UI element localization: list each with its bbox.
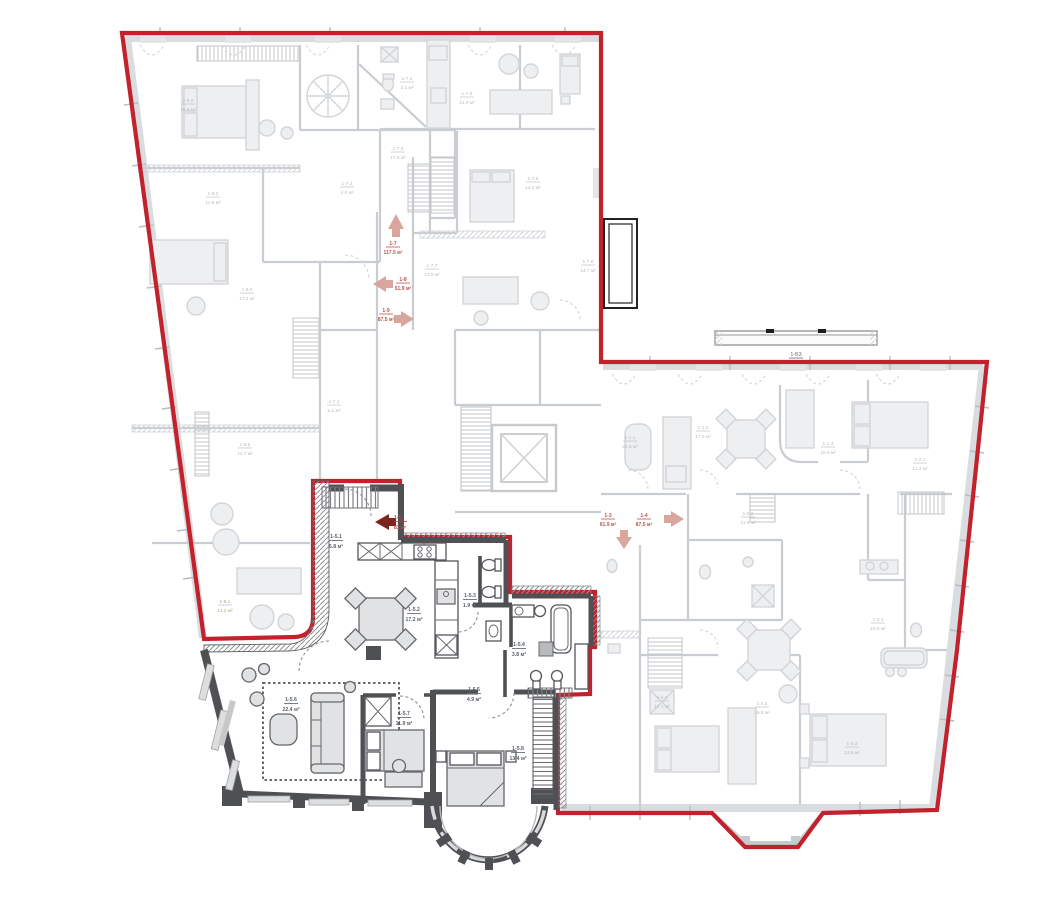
corridor-staircase <box>322 487 378 508</box>
svg-text:5.8 м²: 5.8 м² <box>329 544 343 550</box>
svg-text:1-3: 1-3 <box>604 513 611 519</box>
bedroom-1-furniture <box>365 697 424 787</box>
entrance-arrow-down-right-wing: 1-361.9 м² <box>600 513 632 549</box>
svg-text:17.4 м²: 17.4 м² <box>239 296 255 302</box>
svg-text:1-5.7: 1-5.7 <box>398 711 410 717</box>
vanity <box>486 621 501 641</box>
party-wall-hatch <box>533 697 553 797</box>
svg-text:21.9 м²: 21.9 м² <box>459 100 475 106</box>
svg-text:21.9 м²: 21.9 м² <box>740 520 756 526</box>
svg-text:1-Б3: 1-Б3 <box>790 352 801 358</box>
svg-text:117.5 м²: 117.5 м² <box>384 250 403 256</box>
svg-text:11.9 м²: 11.9 м² <box>396 721 413 727</box>
svg-text:4.9 м²: 4.9 м² <box>467 697 481 703</box>
stove <box>414 545 436 559</box>
armchair <box>270 714 297 745</box>
svg-text:13.9 м²: 13.9 м² <box>424 272 440 278</box>
spiral-staircase <box>307 64 426 127</box>
svg-text:1-5.4: 1-5.4 <box>513 642 525 648</box>
balcony-label: 1-Б3 <box>789 352 803 358</box>
svg-text:1-5.3: 1-5.3 <box>464 593 476 599</box>
svg-text:11.4 м²: 11.4 м² <box>912 466 928 472</box>
svg-text:1-3.1: 1-3.1 <box>873 617 884 623</box>
svg-text:87.5 м²: 87.5 м² <box>636 522 653 528</box>
entrance-arrow-up: 1-7117.5 м² <box>384 214 405 256</box>
svg-text:16.5 м²: 16.5 м² <box>870 626 886 632</box>
plant <box>242 668 256 682</box>
chair <box>393 760 406 773</box>
svg-text:3.1 м²: 3.1 м² <box>401 85 414 91</box>
svg-text:13.6 м²: 13.6 м² <box>844 750 860 756</box>
svg-text:22.4 м²: 22.4 м² <box>282 707 299 713</box>
svg-text:1-7.6: 1-7.6 <box>528 176 539 182</box>
side-table <box>250 692 264 706</box>
shower-tray <box>539 642 553 656</box>
svg-text:1-1.3: 1-1.3 <box>823 441 834 447</box>
svg-text:1-9: 1-9 <box>382 308 389 314</box>
svg-text:1-6.1: 1-6.1 <box>220 599 231 605</box>
svg-text:14.2 м²: 14.2 м² <box>525 185 541 191</box>
svg-text:1-4: 1-4 <box>640 513 647 519</box>
svg-text:15.4 м²: 15.4 м² <box>820 450 836 456</box>
svg-text:1-5.5: 1-5.5 <box>468 687 480 693</box>
sink <box>552 671 563 682</box>
svg-text:17.6 м²: 17.6 м² <box>390 155 406 161</box>
svg-text:1-7.5: 1-7.5 <box>462 91 473 97</box>
svg-text:1-7: 1-7 <box>389 241 396 247</box>
svg-text:13.4 м²: 13.4 м² <box>509 756 526 762</box>
svg-text:1-4.1: 1-4.1 <box>657 695 668 701</box>
svg-text:1-7.8: 1-7.8 <box>583 259 594 265</box>
faded-room-labels: 1-6.216.9 м² 1-6.311.8 м² 1-6.417.4 м² 1… <box>180 76 928 756</box>
svg-text:11.7 м²: 11.7 м² <box>237 451 253 457</box>
elevator-core <box>461 407 556 491</box>
svg-text:1-7.3: 1-7.3 <box>393 146 404 152</box>
entrance-arrow-right-right-wing: 1-487.5 м² <box>636 511 684 528</box>
svg-text:1-7.4: 1-7.4 <box>402 76 413 82</box>
staircase <box>461 407 491 491</box>
svg-text:1-4.3: 1-4.3 <box>847 741 858 747</box>
svg-text:81 м²: 81 м² <box>394 525 407 531</box>
svg-text:4.6 м²: 4.6 м² <box>341 190 354 196</box>
svg-text:11.8 м²: 11.8 м² <box>205 200 221 206</box>
bathroom-fixtures <box>482 559 588 689</box>
svg-text:1-8: 1-8 <box>399 277 406 283</box>
svg-text:1.9 м²: 1.9 м² <box>463 603 477 609</box>
sofa <box>311 693 344 773</box>
svg-text:1-5.6: 1-5.6 <box>285 697 297 703</box>
svg-text:16.9 м²: 16.9 м² <box>180 107 196 113</box>
washing-machine <box>535 606 546 617</box>
facade-window-blocks <box>140 34 946 371</box>
svg-text:1-6.4: 1-6.4 <box>242 287 253 293</box>
highlighted-apartment[interactable]: 1-5 81 м² 1-5.15.8 м² 1-5.217.2 м² 1-5.3… <box>199 481 600 870</box>
tall-cabinet <box>575 644 588 689</box>
svg-text:1-5: 1-5 <box>394 515 401 521</box>
bidet <box>482 587 496 598</box>
nightstand <box>436 751 446 762</box>
balcony-right-wing: 1-Б3 <box>715 329 877 358</box>
balcony-top-right <box>599 219 637 308</box>
svg-text:1-1.1: 1-1.1 <box>625 435 636 441</box>
desk <box>385 772 422 787</box>
toilet <box>482 560 496 571</box>
svg-text:51.9 м²: 51.9 м² <box>395 286 412 292</box>
svg-text:1-6.5: 1-6.5 <box>240 442 251 448</box>
svg-text:16.8 м²: 16.8 м² <box>754 710 770 716</box>
svg-text:17.2 м²: 17.2 м² <box>405 617 422 623</box>
svg-text:1-7.2: 1-7.2 <box>342 181 353 187</box>
floor-plan-page: 1-Б3 1-6.216.9 м² 1-6.311.8 м² 1-6.417.4… <box>0 0 1041 907</box>
faded-hatched-walls <box>132 165 640 638</box>
svg-text:17.1 м²: 17.1 м² <box>654 704 670 710</box>
plant <box>259 664 270 675</box>
floor-plan-svg: 1-Б3 1-6.216.9 м² 1-6.311.8 м² 1-6.417.4… <box>0 0 1041 907</box>
svg-text:5.1 м²: 5.1 м² <box>328 408 341 414</box>
svg-text:11.2 м²: 11.2 м² <box>217 608 233 614</box>
svg-text:17.5 м²: 17.5 м² <box>695 434 711 440</box>
svg-text:1-4.2: 1-4.2 <box>757 701 768 707</box>
svg-text:14.7 м²: 14.7 м² <box>580 268 596 274</box>
svg-text:1-6.3: 1-6.3 <box>208 191 219 197</box>
svg-text:87.5 м²: 87.5 м² <box>378 317 395 323</box>
entrance-arrow-left: 1-851.9 м² <box>373 276 412 292</box>
floor-lamp <box>345 682 356 693</box>
faded-furniture-right-wing <box>607 390 928 784</box>
svg-text:1-7.1: 1-7.1 <box>329 399 340 405</box>
svg-text:61.9 м²: 61.9 м² <box>600 522 617 528</box>
svg-text:1-5.1: 1-5.1 <box>330 534 342 540</box>
svg-text:1-5.2: 1-5.2 <box>408 607 420 613</box>
svg-text:21.6 м²: 21.6 м² <box>622 444 638 450</box>
svg-text:1-1.2: 1-1.2 <box>698 425 709 431</box>
apartment-bay-window <box>432 806 545 870</box>
svg-text:3.8 м²: 3.8 м² <box>512 652 526 658</box>
svg-text:1-5.8: 1-5.8 <box>512 746 524 752</box>
svg-text:1-2.1: 1-2.1 <box>915 457 926 463</box>
entrance-arrow-right: 1-987.5 м² <box>378 308 414 327</box>
bedroom-2-furniture <box>436 751 516 806</box>
svg-text:1-2.2: 1-2.2 <box>743 511 754 517</box>
svg-text:1-6.2: 1-6.2 <box>183 98 194 104</box>
structural-column <box>366 646 381 660</box>
svg-text:1-7.7: 1-7.7 <box>427 263 438 269</box>
sink <box>531 671 542 682</box>
